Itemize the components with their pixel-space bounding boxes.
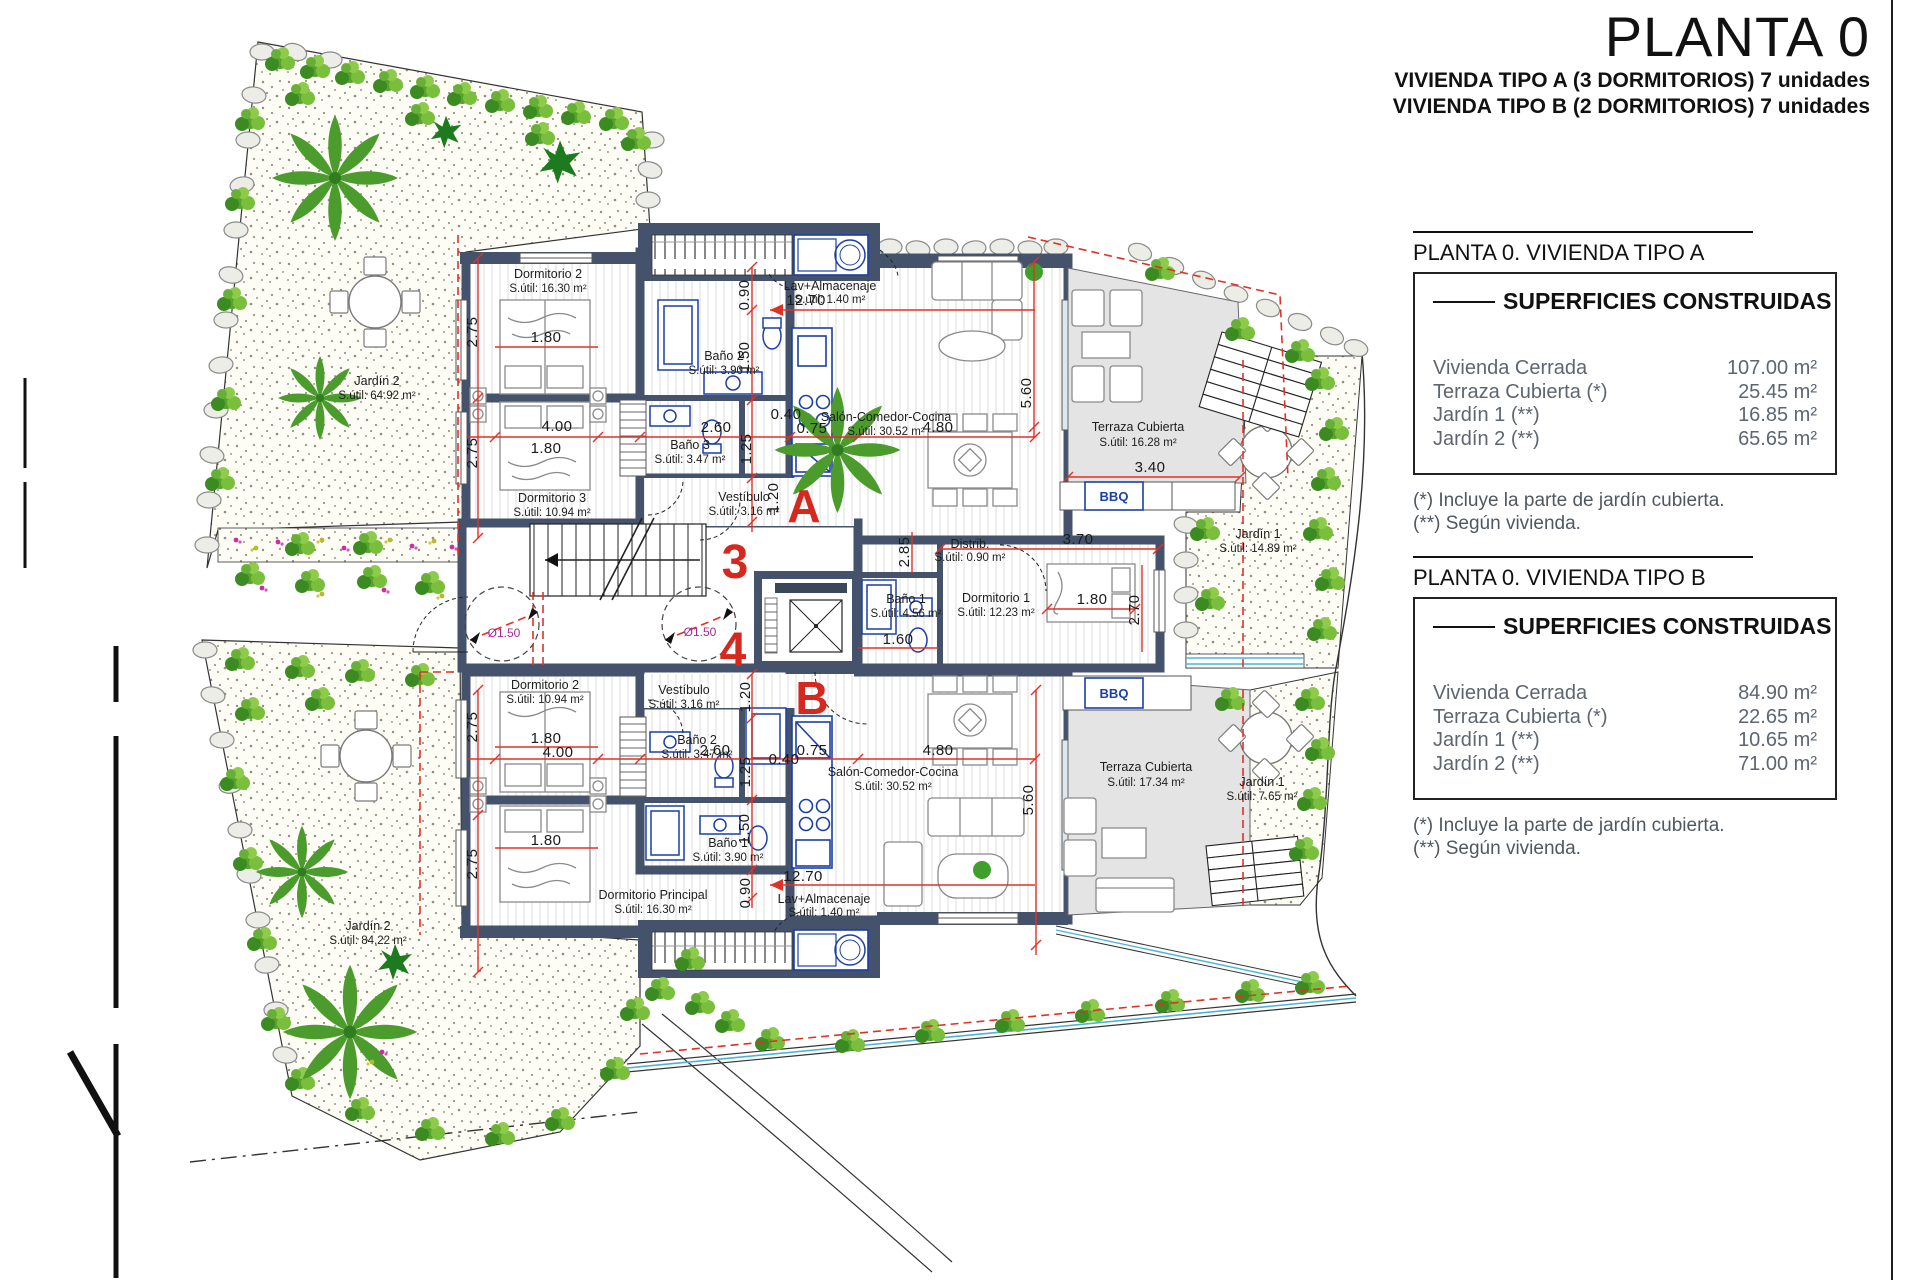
svg-text:5.60: 5.60	[1018, 378, 1035, 409]
svg-text:5.60: 5.60	[1020, 785, 1037, 816]
table-row: Jardín 1 (**)10.65 m²	[1433, 729, 1817, 753]
panel-b-notes: (*) Incluye la parte de jardín cubierta.…	[1413, 814, 1880, 860]
label-b-jardin2: Jardín 2	[345, 919, 390, 933]
diameter-label-right: Ø1.50	[684, 625, 717, 639]
svg-text:4.80: 4.80	[923, 419, 954, 436]
table-row: Vivienda Cerrada107.00 m²	[1433, 357, 1817, 381]
svg-text:12.70: 12.70	[783, 868, 823, 885]
svg-text:2.75: 2.75	[464, 438, 481, 469]
unit-letter-b: B	[795, 672, 828, 724]
bbq-label-a: BBQ	[1100, 489, 1129, 504]
table-row: Jardín 2 (**)65.65 m²	[1433, 428, 1817, 452]
label-b-dormp: Dormitorio Principal	[598, 888, 707, 902]
svg-text:2.75: 2.75	[464, 712, 481, 743]
svg-text:0.90: 0.90	[736, 280, 753, 311]
plan-sheet: Dormitorio 2 S.útil: 16.30 m² Dormitorio…	[0, 0, 1920, 1280]
bbq-label-b: BBQ	[1100, 686, 1129, 701]
table-row: Vivienda Cerrada84.90 m²	[1433, 682, 1817, 706]
label-a-distrib: Distrib.	[951, 537, 990, 551]
svg-text:1.20: 1.20	[765, 483, 782, 514]
summary-panel-b: PLANTA 0. VIVIENDA TIPO B SUPERFICIES CO…	[1413, 556, 1880, 860]
diameter-label-left: Ø1.50	[488, 626, 521, 640]
sheet-border-line	[1891, 0, 1893, 1280]
title-rule	[1433, 626, 1495, 628]
label-b-terraza: Terraza Cubierta	[1100, 760, 1192, 774]
label-a-jardin1: Jardín 1	[1235, 527, 1280, 541]
stairs	[530, 518, 706, 600]
svg-text:S.útil: 16.30 m²: S.útil: 16.30 m²	[509, 283, 587, 295]
table-row: Jardín 2 (**)71.00 m²	[1433, 753, 1817, 777]
svg-text:2.75: 2.75	[464, 849, 481, 880]
svg-text:1.80: 1.80	[531, 832, 562, 849]
svg-text:S.útil: 84.22 m²: S.útil: 84.22 m²	[329, 935, 407, 947]
svg-text:1.80: 1.80	[1077, 591, 1108, 608]
label-a-bano1: Baño 1	[886, 592, 926, 606]
svg-text:S.útil: 0.90 m²: S.útil: 0.90 m²	[935, 552, 1006, 564]
svg-text:1.25: 1.25	[737, 757, 754, 788]
svg-text:S.útil: 14.89 m²: S.útil: 14.89 m²	[1219, 543, 1297, 555]
table-row: Jardín 1 (**)16.85 m²	[1433, 404, 1817, 428]
svg-text:0.75: 0.75	[797, 420, 828, 437]
panel-b-table-title: SUPERFICIES CONSTRUIDAS	[1433, 613, 1817, 640]
label-a-bano3: Baño 3	[670, 438, 710, 452]
label-b-dorm2: Dormitorio 2	[511, 678, 579, 692]
label-a-terraza: Terraza Cubierta	[1092, 420, 1184, 434]
table-row: Terraza Cubierta (*)22.65 m²	[1433, 706, 1817, 730]
svg-text:S.útil: 10.94 m²: S.útil: 10.94 m²	[513, 507, 591, 519]
elevator	[758, 575, 856, 665]
garden-stairs-b	[1206, 836, 1304, 905]
panel-b-box: SUPERFICIES CONSTRUIDAS Vivienda Cerrada…	[1413, 597, 1837, 800]
svg-text:S.útil: 16.28 m²: S.útil: 16.28 m²	[1099, 437, 1177, 449]
svg-text:1.60: 1.60	[883, 631, 914, 648]
flowerbed-strip	[218, 528, 464, 562]
panel-a-box: SUPERFICIES CONSTRUIDAS Vivienda Cerrada…	[1413, 272, 1837, 475]
summary-panel-a: PLANTA 0. VIVIENDA TIPO A SUPERFICIES CO…	[1413, 231, 1880, 535]
svg-text:1.25: 1.25	[738, 434, 755, 465]
svg-text:0.90: 0.90	[737, 878, 754, 909]
svg-text:1.50: 1.50	[736, 342, 753, 373]
svg-text:4.00: 4.00	[542, 418, 573, 435]
svg-text:2.85: 2.85	[896, 537, 913, 568]
svg-text:1.80: 1.80	[531, 440, 562, 457]
label-a-jardin2: Jardín 2	[354, 374, 399, 388]
subtitle-tipo-b: VIVIENDA TIPO B (2 DORMITORIOS) 7 unidad…	[1393, 94, 1870, 120]
label-b-lavadero: Lav+Almacenaje	[778, 892, 871, 906]
svg-text:S.útil: 10.94 m²: S.útil: 10.94 m²	[506, 694, 584, 706]
svg-text:2.60: 2.60	[700, 742, 731, 759]
svg-text:S.útil: 17.34 m²: S.útil: 17.34 m²	[1107, 777, 1185, 789]
label-b-jardin1: Jardín 1	[1239, 775, 1284, 789]
svg-text:S.útil: 30.52 m²: S.útil: 30.52 m²	[847, 426, 925, 438]
svg-text:S.útil: 3.16 m²: S.útil: 3.16 m²	[649, 699, 720, 711]
svg-text:12.70: 12.70	[786, 292, 826, 309]
svg-text:4.80: 4.80	[923, 742, 954, 759]
subtitle-tipo-a: VIVIENDA TIPO A (3 DORMITORIOS) 7 unidad…	[1393, 68, 1870, 94]
label-a-lavadero: Lav+Almacenaje	[784, 279, 877, 293]
table-row: Terraza Cubierta (*)25.45 m²	[1433, 381, 1817, 405]
svg-text:S.útil: 16.30 m²: S.útil: 16.30 m²	[614, 904, 692, 916]
svg-text:S.útil: 64.92 m²: S.útil: 64.92 m²	[338, 390, 416, 402]
svg-text:S.útil: 12.23 m²: S.útil: 12.23 m²	[957, 607, 1035, 619]
label-a-vestibulo: Vestíbulo	[718, 490, 769, 504]
svg-text:S.útil: 3.90 m²: S.útil: 3.90 m²	[693, 852, 764, 864]
label-a-dorm2: Dormitorio 2	[514, 267, 582, 281]
svg-text:1.50: 1.50	[736, 814, 753, 845]
panel-a-table-title: SUPERFICIES CONSTRUIDAS	[1433, 288, 1817, 315]
svg-text:S.útil: 30.52 m²: S.útil: 30.52 m²	[854, 781, 932, 793]
stair-number-4: 4	[720, 624, 747, 677]
label-a-dorm1: Dormitorio 1	[962, 591, 1030, 605]
label-b-vestibulo: Vestíbulo	[658, 683, 709, 697]
svg-text:3.70: 3.70	[1063, 531, 1094, 548]
svg-text:3.40: 3.40	[1135, 459, 1166, 476]
panel-a-header: PLANTA 0. VIVIENDA TIPO A	[1413, 231, 1753, 266]
kitchen-b	[792, 716, 832, 868]
stair-number-3: 3	[722, 536, 749, 589]
svg-text:1.20: 1.20	[737, 682, 754, 713]
svg-text:1.80: 1.80	[531, 329, 562, 346]
svg-text:0.75: 0.75	[797, 742, 828, 759]
panel-b-header: PLANTA 0. VIVIENDA TIPO B	[1413, 556, 1753, 591]
panel-a-notes: (*) Incluye la parte de jardín cubierta.…	[1413, 489, 1880, 535]
unit-letter-a: A	[787, 480, 820, 532]
svg-text:S.útil: 1.40 m²: S.útil: 1.40 m²	[789, 907, 860, 919]
svg-text:2.70: 2.70	[1126, 595, 1143, 626]
svg-text:S.útil: 3.47 m²: S.útil: 3.47 m²	[655, 454, 726, 466]
svg-text:S.útil: 7.65 m²: S.útil: 7.65 m²	[1227, 791, 1298, 803]
svg-text:4.00: 4.00	[543, 744, 574, 761]
svg-text:2.60: 2.60	[701, 419, 732, 436]
svg-text:S.útil: 4.56 m²: S.útil: 4.56 m²	[871, 608, 942, 620]
page-title: PLANTA 0	[1393, 6, 1870, 68]
title-rule	[1433, 301, 1495, 303]
svg-text:0.40: 0.40	[769, 751, 800, 768]
label-a-dorm3: Dormitorio 3	[518, 491, 586, 505]
title-block: PLANTA 0 VIVIENDA TIPO A (3 DORMITORIOS)…	[1393, 6, 1870, 120]
svg-text:2.75: 2.75	[464, 317, 481, 348]
label-b-salon: Salón-Comedor-Cocina	[828, 765, 959, 779]
